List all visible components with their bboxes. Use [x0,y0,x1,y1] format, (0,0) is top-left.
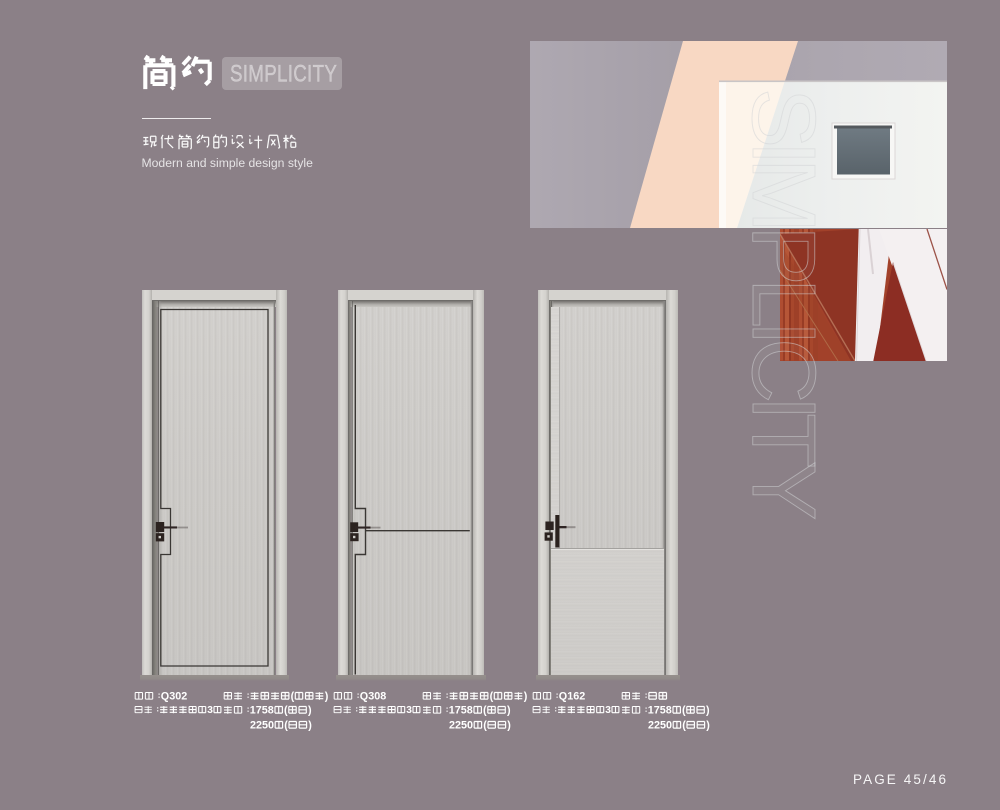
svg-text:2250: 2250 [250,720,274,732]
svg-text:3: 3 [406,705,412,716]
svg-text:3: 3 [207,705,213,716]
svg-text:(: ( [682,720,686,732]
svg-text:): ) [706,705,710,717]
svg-text:(: ( [290,690,294,702]
svg-text:): ) [523,690,527,702]
svg-text:): ) [308,720,312,732]
svg-text:SIMPLICITY: SIMPLICITY [230,60,337,87]
svg-text:): ) [507,705,511,717]
svg-text:Q308: Q308 [359,690,385,702]
svg-text:3: 3 [605,705,611,716]
svg-text:(: ( [682,705,686,717]
svg-text:SIMPLICITY: SIMPLICITY [735,88,833,520]
svg-text:2250: 2250 [449,720,473,732]
svg-text:): ) [324,690,328,702]
svg-text:(: ( [284,705,288,717]
svg-text:): ) [706,720,710,732]
svg-text:Q162: Q162 [559,690,585,702]
svg-text:1758: 1758 [249,705,273,717]
svg-text:): ) [507,720,511,732]
svg-text:1758: 1758 [448,705,472,717]
svg-text:(: ( [489,690,493,702]
svg-text:(: ( [483,720,487,732]
svg-text:Q302: Q302 [160,690,186,702]
svg-text:): ) [308,705,312,717]
svg-text:1758: 1758 [648,705,672,717]
svg-text:2250: 2250 [648,720,672,732]
svg-text:(: ( [483,705,487,717]
svg-text:(: ( [284,720,288,732]
